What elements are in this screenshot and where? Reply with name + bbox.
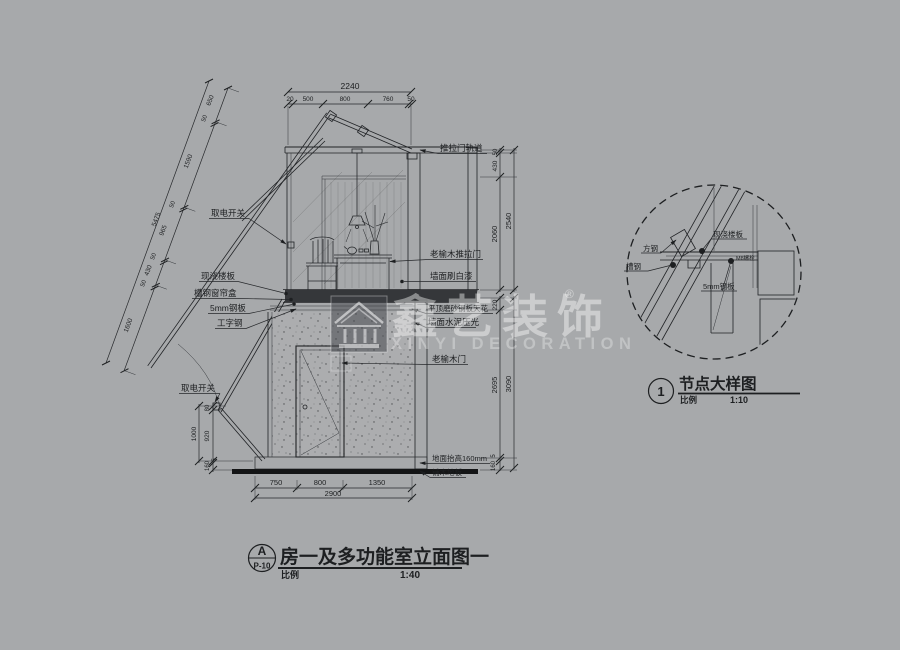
tea-table: [334, 255, 392, 290]
svg-text:墙面刷白漆: 墙面刷白漆: [430, 271, 473, 281]
main-title-block: A P-10 房一及多功能室立面图一 比例 1:40: [249, 544, 490, 581]
scale-value: 1:40: [400, 570, 420, 581]
dim-label: 750: [270, 478, 283, 487]
dim-label: 500: [303, 96, 314, 103]
svg-text:M8螺栓: M8螺栓: [736, 254, 755, 262]
label-track: 推拉门轨道: [420, 143, 487, 154]
curtain-lines: [331, 182, 401, 288]
pendant-lamp: [346, 149, 368, 242]
svg-text:老榆木门: 老榆木门: [432, 354, 466, 364]
detail-node: 方钢 槽钢 现浇楼板 M8螺栓 5mm钢板: [624, 172, 801, 359]
svg-text:5mm钢板: 5mm钢板: [703, 281, 735, 291]
right-wall-section: [468, 148, 477, 291]
dim-label: 2900: [325, 489, 342, 498]
dim-label: 1600: [123, 317, 135, 333]
dim-label: 2060: [490, 226, 499, 243]
furniture: [306, 149, 392, 290]
glass-door-jamb: [408, 153, 420, 290]
dim-label: 920: [204, 430, 211, 441]
bolt-dot: [670, 262, 676, 268]
dim-label: 2695: [490, 377, 499, 394]
dim-label: 160: [491, 460, 497, 471]
drawing-letter: A: [258, 544, 267, 558]
dim-label: 965: [158, 224, 168, 237]
cad-drawing-canvas: 2240 20 500 800 760 50 750 800 1350 2900: [0, 0, 900, 645]
door-section-below: [711, 263, 733, 333]
dim-label: 430: [143, 264, 153, 277]
dim-label: 800: [314, 478, 327, 487]
svg-text:老榆木推拉门: 老榆木推拉门: [430, 249, 481, 259]
dim-label: 50: [407, 96, 415, 103]
scale-label: 比例: [281, 569, 299, 580]
dim-label: 760: [383, 96, 394, 103]
dim-label: 50: [201, 114, 209, 123]
sheet-number: P-10: [254, 562, 271, 571]
door-swing-arc: [178, 344, 220, 408]
svg-text:推拉门轨道: 推拉门轨道: [440, 143, 483, 153]
dim-label: 1350: [369, 478, 386, 487]
dim-label: 650: [205, 94, 215, 107]
dim-label: 20: [286, 96, 294, 103]
svg-text:铺木地板: 铺木地板: [432, 467, 462, 477]
label-floor-raise: 地面抬高160mm: [420, 453, 490, 464]
svg-text:取电开关: 取电开关: [181, 383, 216, 393]
label-wall-paint: 墙面刷白漆: [400, 271, 476, 283]
dim-label: 50: [150, 252, 158, 261]
detail-label-bolt: M8螺栓: [736, 254, 755, 262]
svg-text:工字钢: 工字钢: [217, 318, 243, 328]
scale-label: 比例: [680, 395, 698, 405]
svg-text:地面抬高160mm: 地面抬高160mm: [432, 453, 487, 463]
dim-label: 50: [169, 200, 177, 209]
teapot-and-cups: [344, 247, 369, 255]
left-angled-dimension-chain: 650 50 1590 50 965 50 430 50 1600 5475: [102, 79, 239, 375]
detail-title: 节点大样图: [679, 374, 757, 393]
detail-label-channel-steel: 槽钢: [624, 261, 670, 271]
dim-label: 3090: [504, 376, 513, 393]
label-steel-plate: 5mm钢板: [208, 302, 296, 313]
detail-label-square-steel: 方钢: [641, 240, 676, 253]
wall-block-section: [758, 251, 794, 295]
svg-text:取电开关: 取电开关: [211, 208, 246, 218]
dim-label: 1000: [191, 426, 198, 441]
scale-value: 1:10: [730, 395, 748, 405]
bottom-dimension-chain: 750 800 1350 2900: [251, 476, 416, 502]
dim-label: 5: [491, 454, 497, 458]
watermark-en-text: XINYI DECORATION: [391, 335, 636, 353]
dim-label: 80: [205, 404, 211, 411]
dim-label: 800: [340, 96, 351, 103]
dim-label: 50: [140, 279, 148, 288]
svg-text:方钢: 方钢: [643, 243, 658, 253]
glass-reflection-lines: [293, 170, 405, 284]
detail-bubble-number: 1: [657, 384, 664, 399]
bolt-dot: [728, 258, 734, 264]
top-dimension-chain: 2240 20 500 800 760 50: [284, 81, 416, 145]
dim-label: 2240: [341, 81, 360, 91]
svg-text:槽钢窗帘盒: 槽钢窗帘盒: [194, 288, 237, 298]
label-curtain-box: 槽钢窗帘盒: [192, 288, 293, 301]
detail-label-steel-plate: 5mm钢板: [701, 264, 737, 291]
raised-floor-band: [255, 457, 427, 469]
dim-label: 160: [205, 460, 211, 471]
left-vertical-dimension-chain: 80 920 5 160 1000: [191, 402, 253, 474]
hatched-wall-section: [760, 299, 796, 347]
svg-text:5mm钢板: 5mm钢板: [210, 303, 246, 313]
registered-mark: ®: [565, 287, 574, 301]
dim-label: 430: [492, 160, 499, 171]
label-switch-lower: 取电开关: [179, 383, 220, 402]
svg-text:现浇楼板: 现浇楼板: [201, 271, 236, 281]
dim-label: 2540: [504, 213, 513, 230]
svg-text:槽钢: 槽钢: [626, 261, 641, 271]
svg-text:现浇楼板: 现浇楼板: [713, 229, 743, 239]
dim-label: 5475: [151, 211, 163, 227]
dim-label: 50: [493, 148, 499, 155]
channel-steel-section: [688, 260, 700, 268]
main-title: 房一及多功能室立面图一: [280, 545, 489, 568]
bolt-dot: [699, 248, 705, 254]
detail-title-block: 1 节点大样图 比例 1:10: [649, 374, 801, 405]
detail-content: [626, 172, 796, 356]
label-switch-upper: 取电开关: [209, 208, 294, 248]
dim-label: 1590: [183, 153, 195, 169]
label-sliding-door: 老榆木推拉门: [390, 249, 483, 262]
upper-glass-room: [287, 153, 420, 291]
detail-label-slab: 现浇楼板: [703, 229, 747, 249]
